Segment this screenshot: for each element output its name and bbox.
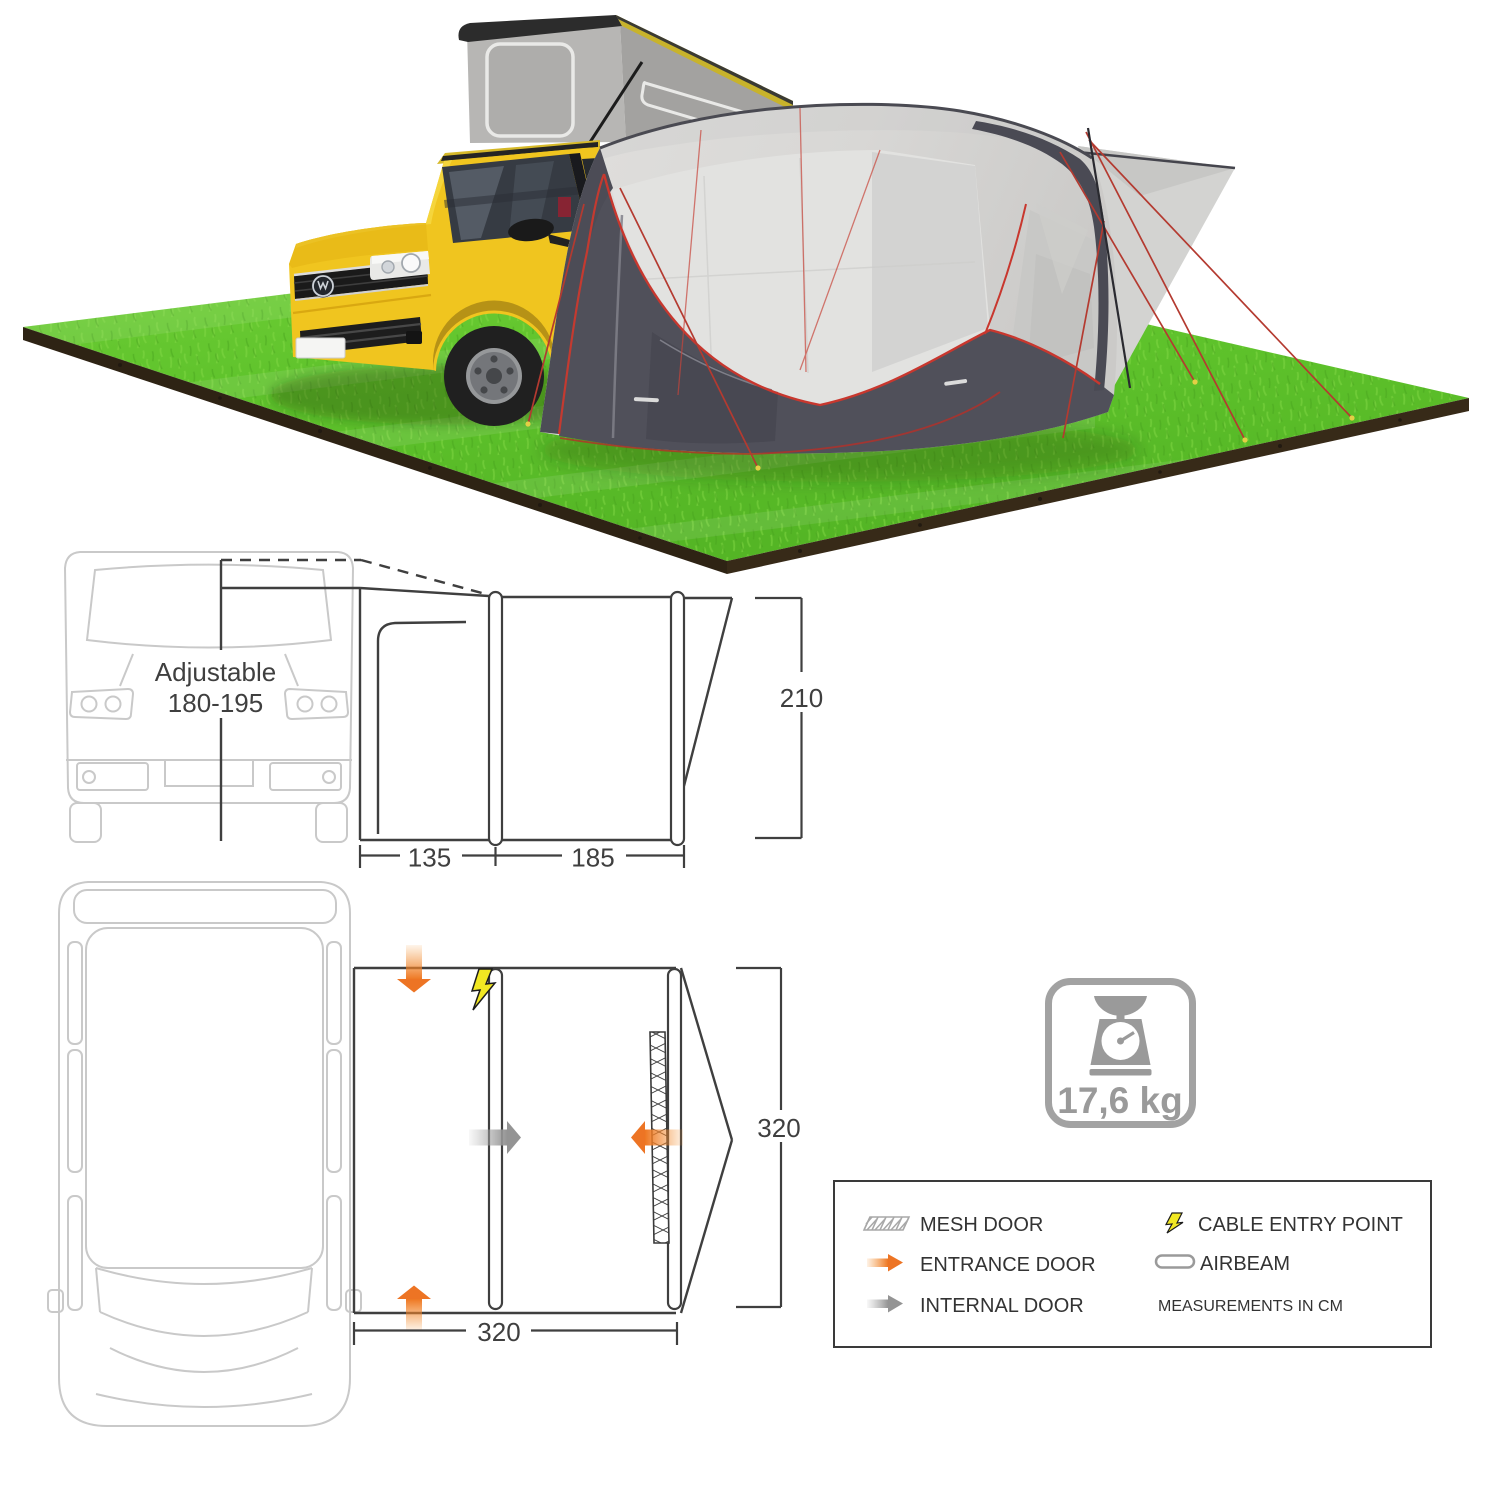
svg-text:135: 135 (408, 843, 451, 873)
svg-text:320: 320 (477, 1317, 520, 1347)
svg-text:AIRBEAM: AIRBEAM (1200, 1253, 1290, 1275)
svg-text:MEASUREMENTS IN CM: MEASUREMENTS IN CM (1158, 1298, 1343, 1315)
svg-text:210: 210 (780, 683, 823, 713)
svg-text:17,6 kg: 17,6 kg (1057, 1080, 1182, 1121)
svg-text:CABLE ENTRY POINT: CABLE ENTRY POINT (1198, 1214, 1403, 1236)
svg-text:Adjustable: Adjustable (155, 657, 276, 687)
svg-text:180-195: 180-195 (168, 688, 263, 718)
svg-text:MESH DOOR: MESH DOOR (920, 1214, 1043, 1236)
svg-text:185: 185 (571, 843, 614, 873)
svg-text:INTERNAL DOOR: INTERNAL DOOR (920, 1295, 1084, 1317)
svg-text:ENTRANCE DOOR: ENTRANCE DOOR (920, 1254, 1096, 1276)
svg-text:320: 320 (757, 1113, 800, 1143)
